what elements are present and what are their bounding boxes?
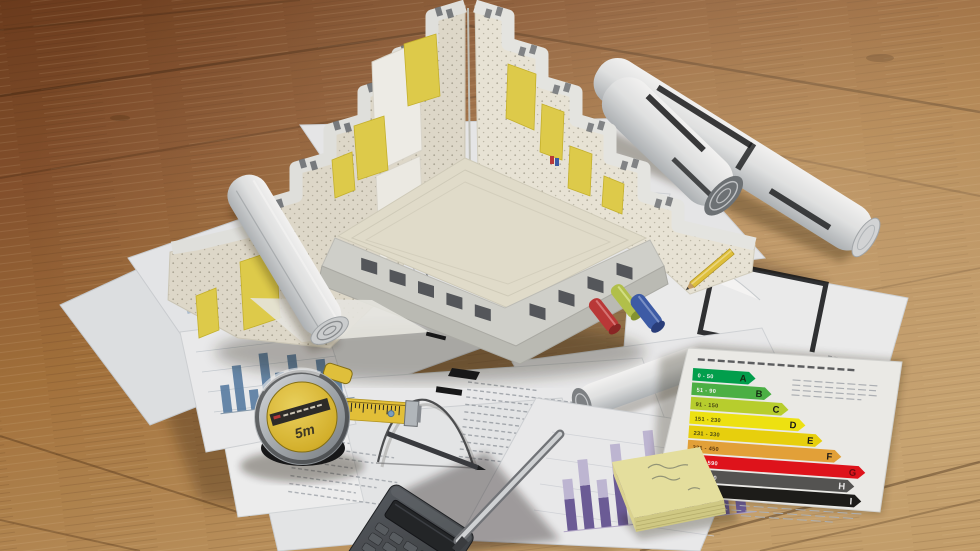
construction-scene: 0 - 50A51 - 90B91 - 150C151 - 230D231 - …	[0, 0, 980, 551]
scene-svg: 0 - 50A51 - 90B91 - 150C151 - 230D231 - …	[0, 0, 980, 551]
vignette	[0, 0, 980, 551]
